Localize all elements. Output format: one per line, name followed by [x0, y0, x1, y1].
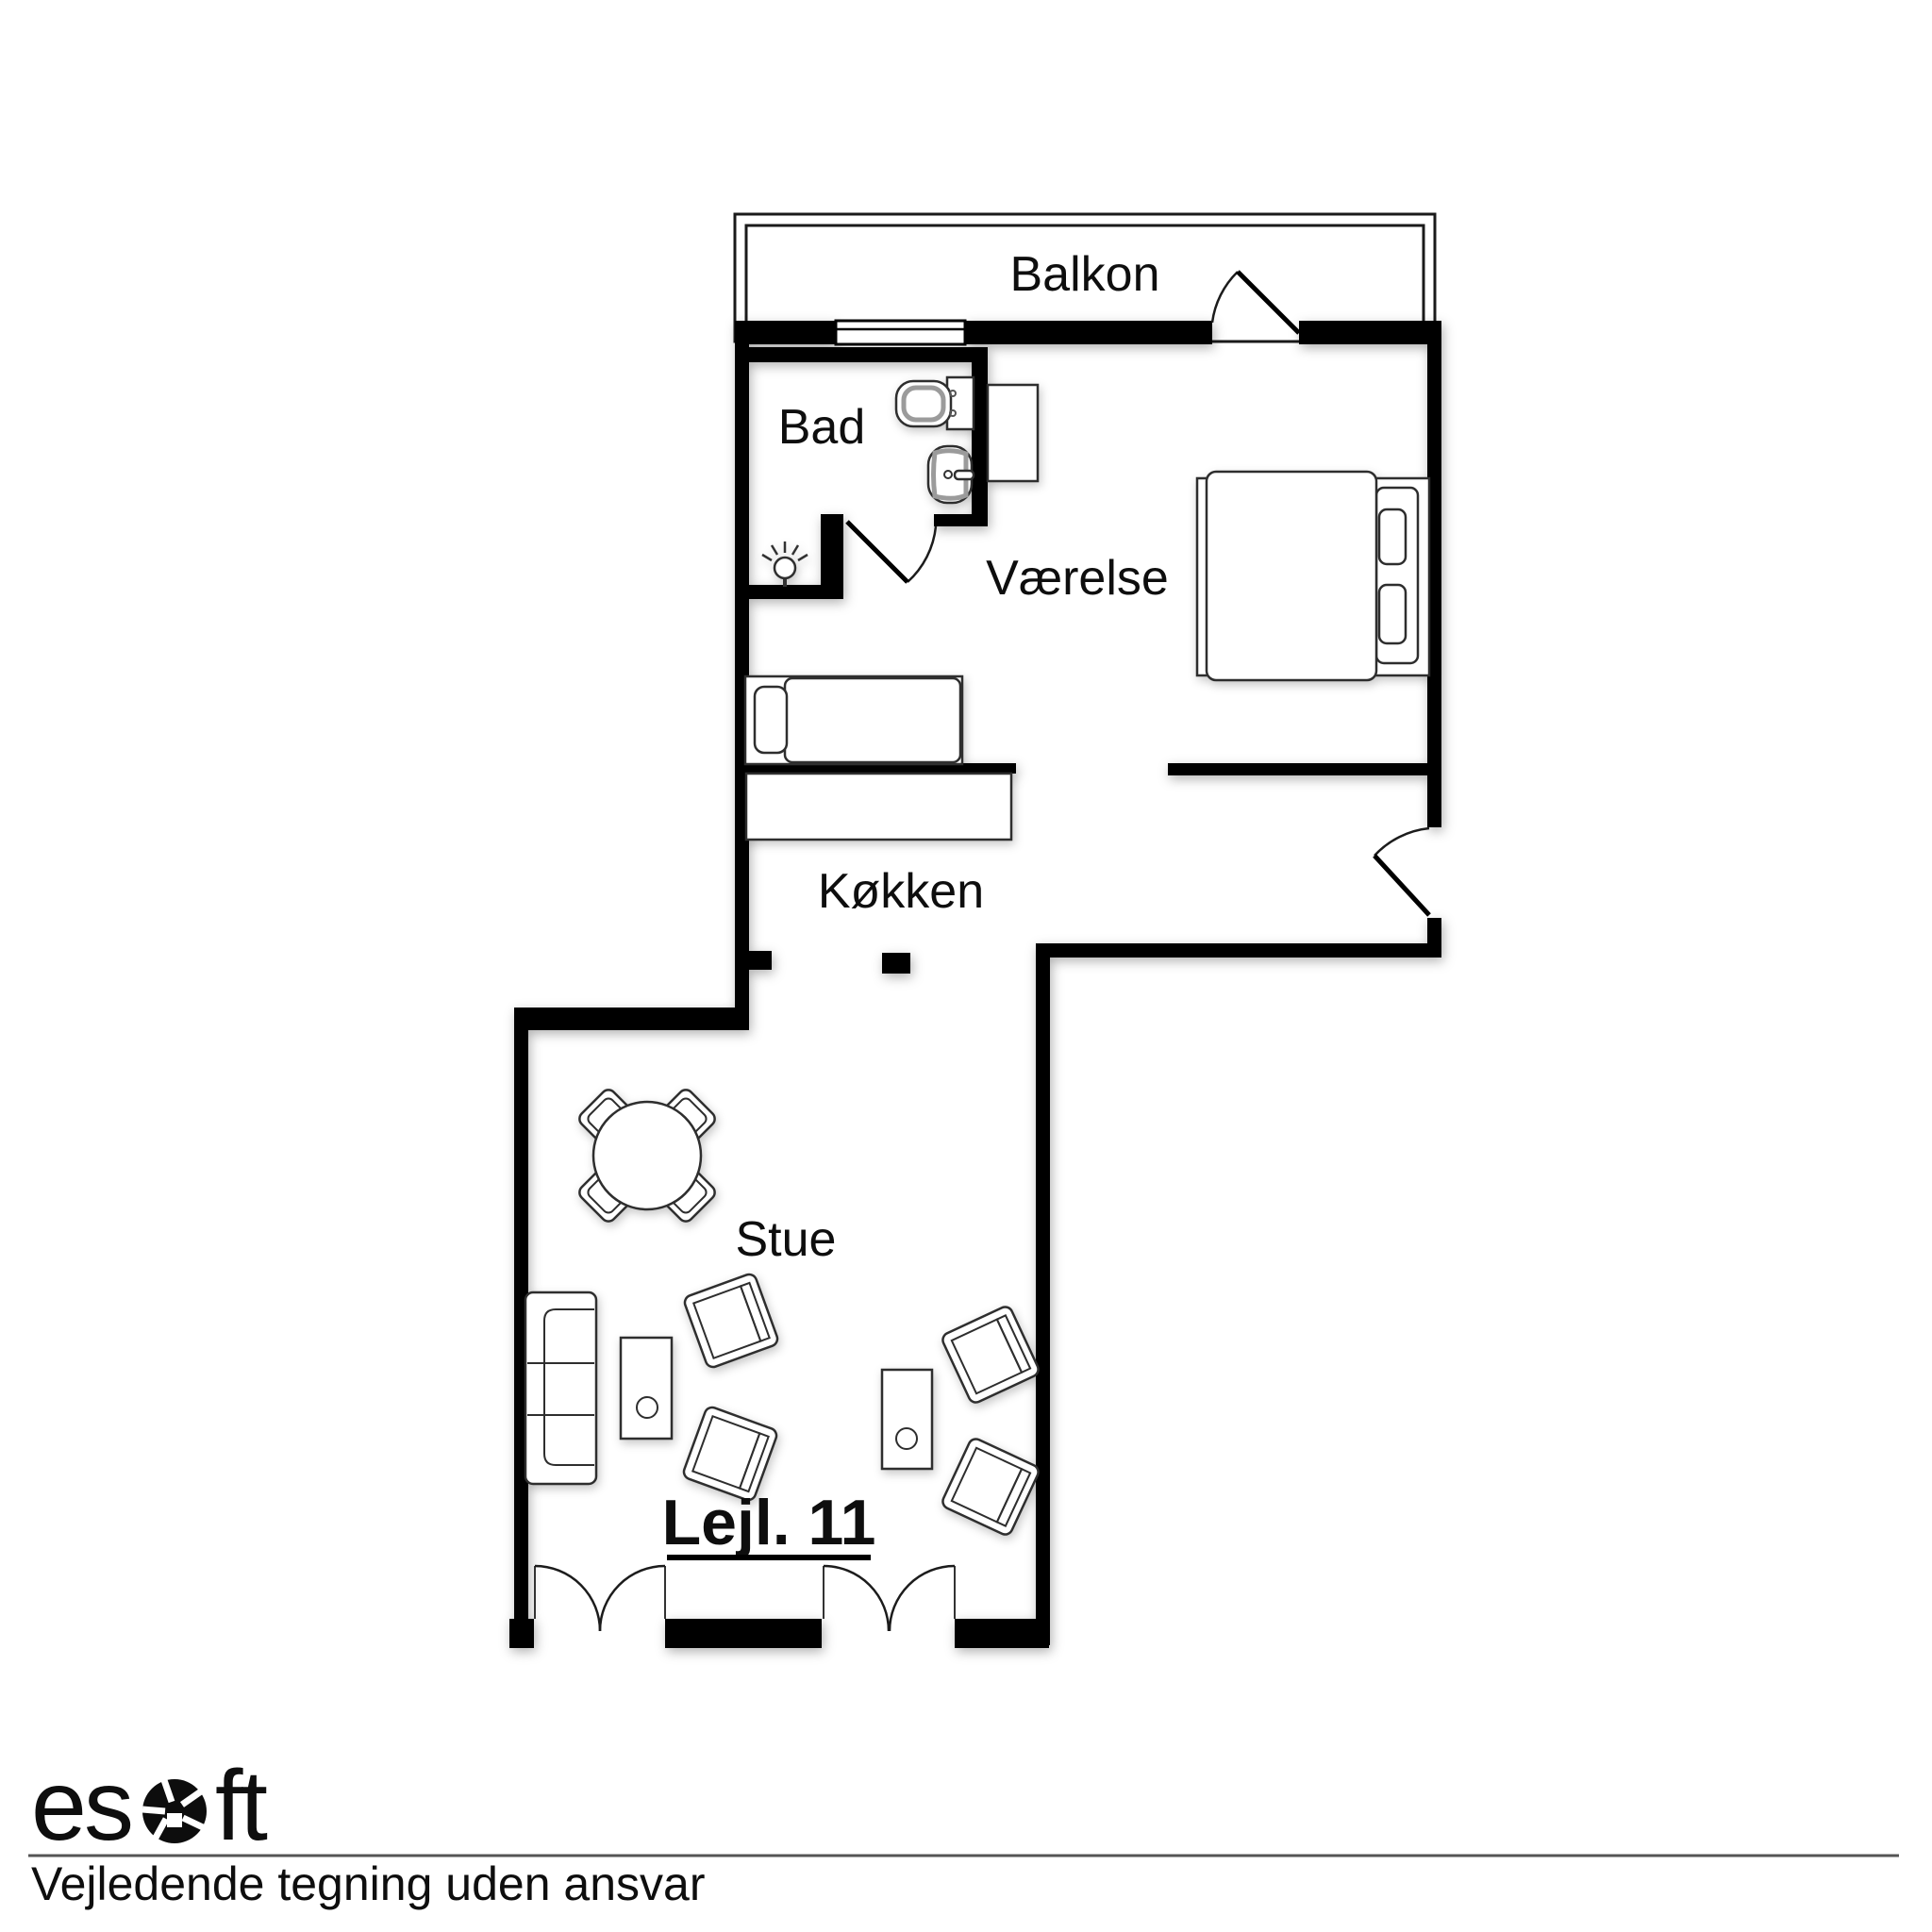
entrance-door: [1374, 828, 1429, 915]
kitchen-counter: [746, 774, 1011, 840]
wall-bad-top: [735, 347, 988, 362]
dining-table: [593, 1102, 701, 1209]
disclaimer-text: Vejledende tegning uden ansvar: [31, 1857, 705, 1910]
balcony-door: [1212, 272, 1299, 333]
brand-text-right: ft: [215, 1750, 267, 1861]
wall-step: [514, 1008, 747, 1030]
wall-stue-bottom-right: [955, 1619, 1049, 1648]
floorplan-page: { "floorplan": { "unit_label": "Lejl. 11…: [0, 0, 1932, 1932]
wall-stue-left-foot: [509, 1619, 534, 1648]
wall-kitchen-stub: [747, 951, 772, 970]
unit-label: Lejl. 11: [662, 1487, 876, 1558]
coffee-table: [882, 1370, 932, 1469]
wall-pier: [882, 953, 910, 974]
wall-top-left: [735, 321, 836, 344]
armchair: [941, 1437, 1041, 1537]
french-door-right: [824, 1566, 955, 1631]
wall-stue-right: [1036, 943, 1050, 1645]
single-bed: [745, 676, 962, 764]
lamp-icon: [762, 541, 808, 587]
brand-text-left: es: [31, 1750, 131, 1861]
double-bed: [1197, 472, 1429, 680]
armchair: [941, 1305, 1041, 1405]
wall-vaerelse-bottom: [1168, 763, 1430, 775]
wall-top-mid: [965, 321, 1212, 344]
shelf: [988, 385, 1038, 481]
room-label-koekken: Køkken: [818, 864, 984, 919]
toilet-icon: [896, 377, 974, 429]
wall-bad-right: [972, 347, 988, 514]
wall-top-right: [1299, 321, 1441, 344]
room-label-stue: Stue: [736, 1212, 837, 1267]
footer: es ft Vejledende tegning uden ansvar: [28, 1750, 1899, 1910]
sofa: [525, 1292, 596, 1484]
wall-stue-bottom-mid: [665, 1619, 822, 1648]
sink-icon: [928, 446, 974, 503]
armchair: [683, 1273, 780, 1370]
floorplan-drawing: Balkon Bad Værelse Køkken Stue Lejl. 11 …: [0, 0, 1932, 1932]
room-label-vaerelse: Værelse: [986, 551, 1169, 606]
window-balcony: [836, 321, 965, 344]
coffee-table: [621, 1338, 672, 1439]
dining-set: [576, 1087, 718, 1224]
wall-bad-right-foot: [934, 514, 988, 526]
wall-bad-bottom: [747, 585, 843, 599]
french-door-left: [535, 1566, 665, 1631]
room-label-bad: Bad: [778, 400, 866, 455]
room-label-balkon: Balkon: [1010, 247, 1160, 302]
bad-door: [847, 522, 936, 582]
esoft-aperture-icon: [142, 1779, 207, 1843]
wall-hall-bottom: [1036, 943, 1441, 958]
